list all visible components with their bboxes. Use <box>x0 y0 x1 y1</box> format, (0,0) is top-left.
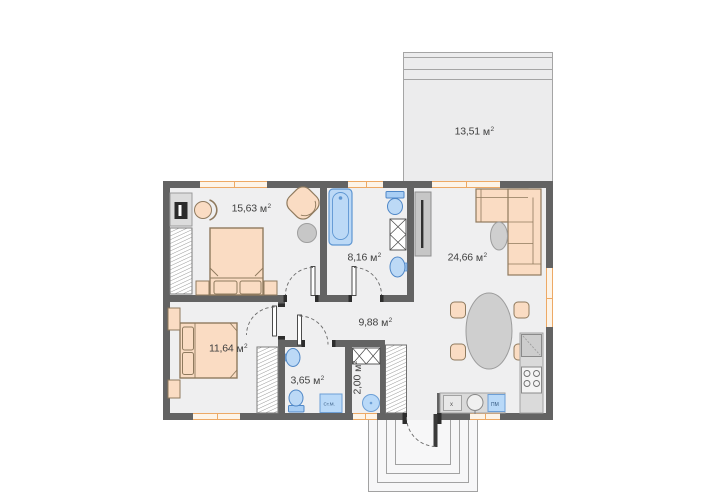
floor-plan: x ПМ Ст.М. <box>0 0 703 502</box>
sink-bathroom <box>390 257 407 277</box>
wardrobe-bedroom1 <box>170 228 192 294</box>
hob-label: x <box>450 402 453 408</box>
dishwasher-label: ПМ <box>491 402 499 408</box>
wardrobe-entry <box>386 345 407 413</box>
door-bedroom1 <box>286 267 316 296</box>
desk <box>170 193 192 226</box>
bathroom-cabinet <box>390 219 406 250</box>
corner-armchair <box>283 183 323 223</box>
tv-panel <box>415 192 431 256</box>
door-entrance <box>407 414 438 447</box>
dining-table <box>466 293 512 369</box>
area-label-wc: 3,65м2 <box>290 374 323 387</box>
desk-chair <box>195 200 217 220</box>
double-bed-bedroom1 <box>210 228 263 295</box>
area-label-living: 24,66м2 <box>448 251 487 264</box>
sink-wc <box>286 349 301 367</box>
area-label-hallway: 9,88м2 <box>358 316 391 329</box>
toilet-wc <box>289 390 305 412</box>
nightstand <box>168 380 180 398</box>
area-label-bathroom: 8,16м2 <box>347 251 380 264</box>
nightstand <box>264 281 277 295</box>
kitchen-counter-bottom: x ПМ <box>440 393 505 414</box>
water-heater <box>363 395 380 412</box>
door-bathroom <box>352 267 382 296</box>
dining-chair <box>451 344 466 360</box>
dining-chair <box>514 302 529 318</box>
area-label-bedroom1: 15,63м2 <box>232 202 271 215</box>
round-rug <box>298 224 317 243</box>
bathtub <box>329 189 352 245</box>
toilet-bathroom <box>386 192 404 215</box>
door-bedroom2 <box>247 306 277 336</box>
washing-machine-label: Ст.М. <box>324 402 335 407</box>
area-label-terrace: 13,51м2 <box>455 125 494 138</box>
fridge <box>522 335 542 357</box>
kitchen-sink <box>467 395 483 411</box>
nightstand <box>196 281 209 295</box>
wardrobe-bedroom2 <box>257 347 278 413</box>
washing-machine: Ст.М. <box>320 394 342 413</box>
kitchen-counter-right <box>520 333 543 413</box>
dining-chair <box>451 302 466 318</box>
coffee-table <box>491 222 508 250</box>
area-label-closet: 2,00м2 <box>351 361 364 394</box>
area-label-bedroom2: 11,64м2 <box>209 342 247 355</box>
nightstand <box>168 308 180 330</box>
